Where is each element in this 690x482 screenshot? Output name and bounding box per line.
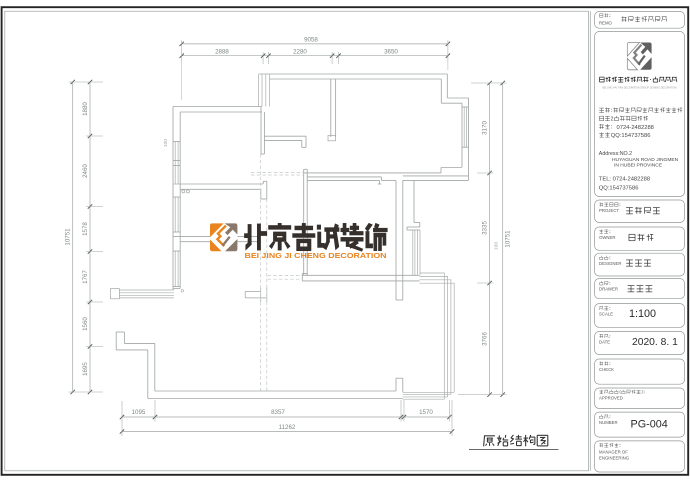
svg-text:2460: 2460	[82, 164, 89, 178]
svg-text:1560: 1560	[82, 317, 89, 331]
svg-text:1095: 1095	[132, 409, 146, 416]
svg-text:QQ:154737586: QQ:154737586	[611, 133, 651, 139]
svg-text:9058: 9058	[304, 37, 318, 44]
svg-text:2280: 2280	[293, 48, 307, 55]
svg-text:APPROVED: APPROVED	[599, 396, 623, 401]
svg-text:Address:NO.2: Address:NO.2	[599, 151, 632, 157]
svg-text:10751: 10751	[65, 228, 72, 246]
svg-text:NUMBER: NUMBER	[599, 420, 618, 425]
svg-text:TEL: 0724-2482288: TEL: 0724-2482288	[599, 176, 650, 182]
svg-text:1767: 1767	[82, 270, 89, 284]
svg-text:OWNER: OWNER	[599, 235, 615, 240]
svg-text:DATE: DATE	[599, 339, 610, 344]
svg-text:10751: 10751	[505, 230, 512, 248]
svg-text:BEI JING JI CHENG DECORATION: BEI JING JI CHENG DECORATION	[245, 253, 387, 260]
svg-text:MANAGER OF: MANAGER OF	[599, 449, 628, 454]
svg-text:DESIGNER: DESIGNER	[599, 261, 621, 266]
svg-text:QQ:154737586: QQ:154737586	[599, 185, 639, 191]
svg-text:8357: 8357	[271, 409, 285, 416]
svg-text:100: 100	[494, 242, 500, 250]
svg-text:0724-2482288: 0724-2482288	[617, 125, 654, 131]
svg-text:1695: 1695	[82, 362, 89, 376]
svg-text:11262: 11262	[279, 424, 296, 431]
svg-text:HUYAGUAN ROAD JINGMEN: HUYAGUAN ROAD JINGMEN	[612, 157, 679, 163]
svg-text:2888: 2888	[215, 48, 229, 55]
svg-text:CHECK: CHECK	[599, 367, 614, 372]
svg-text:2020. 8. 1: 2020. 8. 1	[632, 337, 678, 348]
svg-text:DRAWER: DRAWER	[599, 286, 618, 291]
svg-text:3335: 3335	[481, 221, 488, 235]
svg-text:ENGINEERING: ENGINEERING	[599, 455, 630, 460]
svg-text:1578: 1578	[82, 222, 89, 236]
svg-text:PROJECT: PROJECT	[599, 208, 619, 213]
svg-text:3766: 3766	[481, 332, 488, 346]
svg-text:IN HUBEI PROVINCE: IN HUBEI PROVINCE	[614, 163, 663, 169]
svg-text:3650: 3650	[384, 48, 398, 55]
svg-text:PG-004: PG-004	[631, 419, 668, 431]
svg-text:1570: 1570	[419, 409, 433, 416]
svg-text:SCALE: SCALE	[599, 311, 613, 316]
svg-text:3170: 3170	[481, 121, 488, 135]
svg-text:BEI JING HAI TIAN DECORATION G: BEI JING HAI TIAN DECORATION GROUP JICHE…	[602, 86, 676, 89]
svg-text:1:100: 1:100	[629, 308, 656, 320]
svg-text:REMO: REMO	[599, 20, 613, 25]
svg-text:100: 100	[163, 139, 169, 147]
svg-text:1880: 1880	[82, 102, 89, 116]
svg-text:2: 2	[610, 117, 613, 123]
